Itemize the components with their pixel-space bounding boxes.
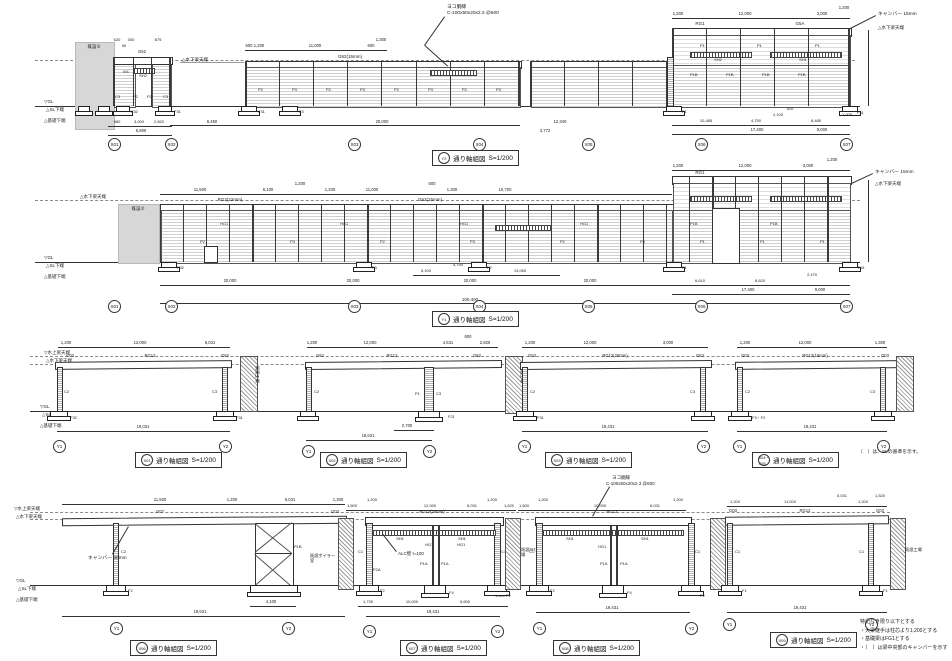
dim-line [108,126,172,127]
beam-label: G62 [138,50,146,55]
footing-base [718,591,742,596]
member-label: C3 [690,390,695,395]
level-extension-line [180,62,244,63]
dim-line [522,347,708,348]
dim-line [737,347,887,348]
footing-base [513,416,537,421]
dim-label: 8,620 [755,279,765,284]
dim-line [358,606,508,607]
caption-grid-bubble: X01 [141,454,153,466]
dim-label: 1,300 [376,38,386,43]
footing-base [113,111,133,116]
dim-line [672,294,850,295]
dim-label: 1,200 [367,498,377,503]
caption-grid-bubble: X06 [136,642,148,654]
column-line [459,204,460,262]
level-label: ▽GL [16,578,25,583]
column-line [381,61,382,106]
drawing-caption: X01通り軸組図S=1/200 [135,452,222,468]
dim-label: 1,200 [730,500,740,505]
beam-label: G03 [881,354,889,359]
member-label: P2 [133,95,138,100]
beam-label: SH1 [799,58,807,63]
column-line [564,61,565,106]
dim-label: 12,340 [554,120,567,125]
general-note-line: ・基礎梁はFG1とする [860,637,910,643]
caption-title: 通り軸組図 [574,643,607,653]
caption-grid-bubble: X04・X05 [758,454,770,466]
dim-label: 11,000 [309,44,322,49]
grid-bubble-y: Y2 [697,440,710,453]
drawing-caption: X06通り軸組図S=1/200 [130,640,217,656]
level-label: △基礎下端 [16,597,37,602]
wide-column [57,367,63,413]
member-label: P1 [700,44,705,49]
drawing-caption: X03通り軸組図S=1/200 [545,452,632,468]
dim-label: 10,485 [700,119,712,124]
grid-bubble-x: X05 [582,300,595,313]
leader-line [848,15,876,30]
member-label: C1 [695,550,700,555]
roof-beam [725,515,889,525]
member-label: HG1 [457,543,465,548]
girt-callout-spec: C-100x50x20x2.3 @600 [447,11,499,17]
alc-callout: ALC壁 t=100 [398,551,424,556]
dim-label: 6,610 [695,279,705,284]
structural-framing-elevation-sheet: ▽GL△SL下端△基礎下端▽GL△SL下端△基礎下端▽水上梁天端△水下梁天端▽G… [0,0,952,661]
dim-label: 6,031 [205,341,215,346]
column-line [781,176,782,262]
grid-bubble-y: Y1 [723,618,736,631]
girt-callout-spec: C-100x50x20x2.3 @600 [606,481,655,486]
footing-base [213,416,237,421]
beam-label: RG12(20mm) [602,354,627,359]
dim-label: 1,200 [487,498,497,503]
level-label: △SL下端 [46,263,64,268]
column-line [706,28,707,106]
beam-label: G62(15mm) [338,54,362,59]
member-label: P3 [496,88,501,93]
grid-bubble-x: X03 [348,300,361,313]
dim-line [672,18,850,19]
beam-label: SH1 [641,537,649,542]
dim-label: 50 [122,44,126,49]
roof-beam [113,57,173,65]
level-label: △基礎下端 [44,118,65,123]
dim-line [245,50,387,51]
member-label: P1 [815,44,820,49]
caption-scale: S=1/200 [809,457,833,464]
level-label: △SL下端 [18,586,36,591]
dim-line [57,431,230,432]
dim-line [413,275,560,276]
footing-label: F4 [627,591,632,596]
caption-scale: S=1/200 [610,645,634,652]
wide-column [737,367,743,413]
dim-line [672,125,850,126]
wide-column [688,523,695,587]
dim-line [306,440,432,441]
wide-column [222,367,228,413]
roof-beam [735,360,897,370]
column-line [666,204,667,262]
level-label: △水下梁天端 [80,194,106,199]
dim-label: 5,100 [421,269,431,274]
column-line [620,204,621,262]
dim-label: 20,000 [584,279,597,284]
column-line [484,61,485,106]
caption-grid-bubble: X08 [559,642,571,654]
dim-label: 1,200 [673,12,683,17]
vertical-dim-line [868,30,869,106]
grid-bubble-x: X05 [582,138,595,151]
footing-base [103,591,129,596]
caption-title: 通り軸組図 [156,455,189,465]
column-line [390,204,391,262]
level-label: ▽GL [44,99,53,104]
footing-base [356,591,382,596]
dim-label: 3,000 [803,164,813,169]
existing-hatch [505,518,521,590]
footing-label: F31 [537,416,544,421]
sub-beam-stud [430,70,477,76]
column-line [432,526,434,585]
grid-bubble-x: X02 [165,300,178,313]
girt-callout-name: ヨコ胴縁 [447,5,466,11]
dim-line [536,612,690,613]
dim-label: 1,500 [519,504,529,509]
footing-base [47,416,71,421]
dim-line [160,303,850,304]
ground-line [30,585,890,586]
grid-bubble-x: X06 [695,138,708,151]
caption-title: 通り軸組図 [791,635,824,645]
footing-base [238,111,260,116]
column-line [482,204,484,262]
existing-label: 既設工場 [254,366,259,383]
dim-label: 2,470 [807,273,817,278]
member-label: P1B [690,73,698,78]
dim-label: 2,820 [154,120,164,125]
beam-label: RG12(25mm) [419,510,444,515]
footing-base [75,111,93,116]
column-line [758,176,759,262]
caption-title: 通り軸組図 [151,643,184,653]
footing-label: F4 [449,591,454,596]
column-line [597,204,599,262]
footing-label: F31 [236,416,243,421]
dim-label: 600 [368,44,375,49]
footing-base [859,591,883,596]
beam-label: G62 [316,354,324,359]
member-label: P3 [290,240,295,245]
grid-bubble-x: X07 [840,138,853,151]
member-label: P2 [147,95,152,100]
beam-label: RG12 [145,354,156,359]
beam-label: G03 [66,354,74,359]
column-line [574,204,575,262]
footing-label: F31 [174,110,181,115]
roof-beam [62,516,347,526]
dim-label: 3,000 [134,120,144,125]
footing-label: F41 [857,111,864,116]
dim-line [160,194,672,195]
footing-label: F32 [70,416,77,421]
dim-label: 18,631 [362,434,375,439]
caption-scale: S=1/200 [192,457,216,464]
wall-panel [246,67,521,108]
grid-bubble-y: Y1 [53,440,66,453]
column-line [450,61,451,106]
column-line [616,526,618,585]
column-line [245,61,247,106]
footing-label: F1 [682,266,687,271]
grid-bubble-y: Y2 [282,622,295,635]
caption-title: 通り軸組図 [421,643,454,653]
level-label: △水下梁天端 [875,181,901,186]
roof-beam [535,517,692,526]
dim-label: 600 [429,182,436,187]
grid-bubble-x: X01 [108,300,121,313]
beam-label: G62 [221,354,229,359]
member-label: C2 [121,550,126,555]
member-label: P1B [690,222,698,227]
dim-label: 620 [114,38,121,43]
member-label: P1B [770,222,778,227]
dim-label: 1,200 [227,498,237,503]
dim-label: 1,500 [347,504,357,509]
caption-scale: S=1/200 [827,637,851,644]
beam-label: G62 [473,354,481,359]
dim-label: 11,500 [194,188,207,193]
sub-beam-stud [495,225,552,231]
dim-label: 10,700 [499,188,512,193]
dim-label: 19,031 [137,425,150,430]
beam-label: SH1 [566,537,574,542]
level-label: ▽GL [40,404,49,409]
dim-label: 11,500 [154,498,167,503]
member-label: C2 [314,390,319,395]
existing-hatch [240,356,258,412]
caption-scale: S=1/200 [187,645,211,652]
dim-label: 19,431 [804,425,817,430]
caption-scale: S=1/200 [377,457,401,464]
dim-line [727,506,887,507]
member-label: C2 [64,390,69,395]
drawing-caption: X07通り軸組図S=1/200 [400,640,487,656]
footing-base [599,593,627,598]
caption-title: 通り軸組図 [453,153,486,163]
drawing-caption: Y2通り軸組図S=1/200 [432,150,519,166]
column-line [367,204,369,262]
column-line [740,28,741,106]
existing-building-block [75,42,115,130]
dim-label: 1,200 [525,341,535,346]
footing-label: F1 [883,589,888,594]
caption-grid-bubble: X07 [406,642,418,654]
camber-callout: キャンバー 30mm [88,556,127,562]
level-line [30,356,885,357]
wide-column [700,367,706,413]
beam-label: G03 [729,509,737,514]
dim-label: 3,000 [817,12,827,17]
dim-label: 12,000 [364,341,377,346]
dim-label: 4,631 [443,341,453,346]
existing-hatch [896,356,914,412]
footing-label: F1 [742,589,747,594]
grid-bubble-x: X02 [165,138,178,151]
dim-label: 12,000 [799,341,812,346]
member-label: P3 [470,240,475,245]
dim-line [394,430,434,431]
member-label: HG1 [220,222,228,227]
dim-label: 1,200 [325,188,335,193]
dim-label: 1,200 [673,164,683,169]
member-label: P3 [292,88,297,93]
existing-hatch [710,518,726,590]
footing-base [279,111,301,116]
dim-label: 19,431 [606,606,619,611]
member-label: HG1 [340,222,348,227]
member-label: P1B [294,545,302,550]
footing-base [691,416,715,421]
member-label: P1 [757,44,762,49]
wall-panel [531,67,673,108]
dim-label: 1,200 [61,341,71,346]
beam-label: G62(15mm) [418,197,442,202]
column-line [518,61,520,106]
dim-label: 875 [155,38,162,43]
member-label: P2 [560,240,565,245]
member-label: P1B [762,73,770,78]
dim-label: 1,520 [875,494,885,499]
dim-line [250,606,296,607]
caption-grid-bubble: Y1 [438,313,450,325]
beam-label: RG2(22mm) [218,197,243,202]
column-line [505,204,506,262]
dim-line [62,504,345,505]
dim-label: 6,800 [136,129,146,134]
member-label: C3 [870,390,875,395]
footing-label: F41 [858,266,865,271]
member-label: C1 [859,550,864,555]
footing-label: F32 [131,110,138,115]
roof-beam [55,360,232,370]
sub-beam-stud [542,530,684,536]
beam-label: G5A [795,21,804,26]
member-label: P1 [820,240,825,245]
member-label: C1 [358,550,363,555]
dim-label: 12,000 [424,504,436,509]
camber-callout: キャンバー 15mm [875,170,914,176]
roof-beam [305,360,502,370]
drawing-caption: X09通り軸組図S=1/200 [770,632,857,648]
footing-label: F3 [372,266,377,271]
dim-label: 980 [114,120,121,125]
dim-label: 8,485 [811,119,821,124]
beam-label: RG12 [800,509,811,514]
dim-label: 17,400 [742,288,755,293]
member-label: P2 [258,88,263,93]
footing-base [247,592,301,597]
grid-bubble-x: X03 [348,138,361,151]
beam-label: RG12 [607,510,618,515]
member-label: P2 [462,88,467,93]
dim-label: 19,431 [427,610,440,615]
dim-label: 19,431 [602,425,615,430]
member-label: HG1 [598,545,606,550]
dim-label: 1,200 [307,341,317,346]
sub-beam-stud [690,196,752,202]
grid-bubble-y: Y1 [518,440,531,453]
member-label: P2A [373,568,381,573]
dim-label: 1,300 [875,341,885,346]
leader-line [382,533,397,552]
note-row3: （ ）は、SLの基準を示す。 [858,450,921,456]
beam-label: G62 [696,354,704,359]
dim-line [62,616,345,617]
dim-label: 9,000 [817,128,827,133]
dim-line [737,431,887,432]
beam-label: SH1 [396,537,404,542]
dim-label: 12,000 [739,164,752,169]
dim-label: 20,000 [224,279,237,284]
dim-line [58,347,230,348]
caption-grid-bubble: X03 [551,454,563,466]
column-line [229,204,230,262]
general-note-line: ・（ ）は梁中央部のキャンバーを示す [860,646,948,652]
member-label: P3 [428,88,433,93]
existing-label: 既設工場 [905,548,923,553]
column-line [344,204,345,262]
column-line [598,61,599,106]
existing-building-label: 既設② [131,206,144,211]
column-line [347,61,348,106]
member-label: P2 [394,88,399,93]
member-label: C2 [745,390,750,395]
dim-line [672,134,850,135]
footing-base [95,111,113,116]
dim-label: 2,700 [402,424,412,429]
member-label: C1 [529,550,534,555]
beam-label: G03 [331,510,339,515]
member-label: P2 [200,240,205,245]
member-label: C3 [115,95,120,100]
footing-base [415,417,443,422]
beam-label: RG1 [695,21,704,26]
tower-mid-line [255,553,292,554]
grid-bubble-y: Y1 [302,445,315,458]
caption-title: 通り軸組図 [341,455,374,465]
beam-label: RG12 [387,354,398,359]
column-line [643,204,644,262]
dim-label: 10,000 [406,600,418,605]
member-label: C1 [735,550,740,555]
dim-label: 1,200 [858,500,868,505]
member-label: P1B [798,73,806,78]
existing-building-label: 既設② [87,44,100,49]
member-label: P3 [360,88,365,93]
dim-label: 1,735 [363,600,373,605]
column-line [610,526,612,585]
column-line [183,204,184,262]
dim-label: 510 [787,107,794,112]
camber-callout: キャンバー 15mm [878,12,917,18]
dim-label: 11,000 [784,500,796,505]
dim-label: 1,300 [447,188,457,193]
level-label: △基礎下端 [40,423,61,428]
column-line [416,61,417,106]
